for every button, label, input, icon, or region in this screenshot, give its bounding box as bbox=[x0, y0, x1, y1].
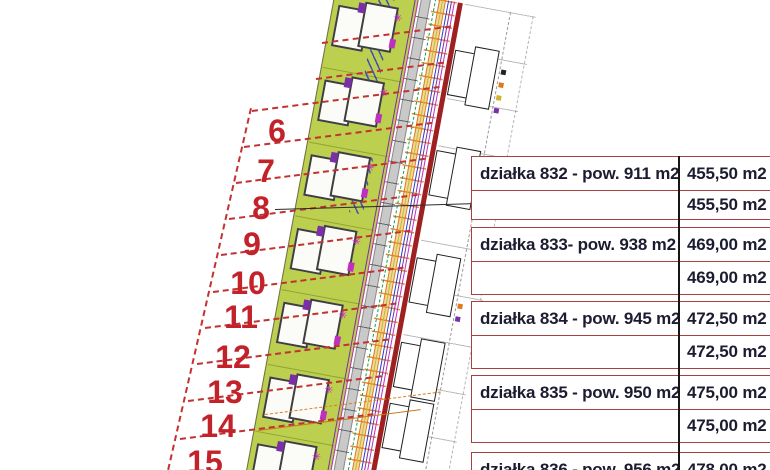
utility-connection-mark bbox=[493, 108, 499, 114]
utility-connection-mark bbox=[496, 95, 502, 101]
utility-accent bbox=[361, 188, 369, 198]
utility-accent bbox=[347, 262, 355, 272]
table-cell-plot-label: działka 836 - pow. 956 m2 bbox=[472, 453, 677, 470]
plot-number-14: 14 bbox=[200, 410, 236, 442]
table-cell-plot-label: działka 833- pow. 938 m2 bbox=[472, 228, 677, 261]
table-cell-area-value: 469,00 m2 bbox=[677, 262, 770, 294]
table-group-835: działka 835 - pow. 950 m2 475,00 m2 475,… bbox=[471, 375, 770, 443]
utility-connection-mark bbox=[457, 303, 463, 309]
plot-number-9: 9 bbox=[243, 228, 261, 260]
table-group-833: działka 833- pow. 938 m2 469,00 m2 469,0… bbox=[471, 227, 770, 295]
plot-number-6: 6 bbox=[268, 115, 286, 147]
utility-mark-icon: ✳ bbox=[311, 451, 322, 463]
table-cell-area-value: 455,50 m2 bbox=[677, 157, 770, 190]
utility-connection-mark bbox=[455, 316, 461, 322]
table-row: 475,00 m2 bbox=[472, 410, 770, 442]
table-row: działka 835 - pow. 950 m2 475,00 m2 bbox=[472, 376, 770, 410]
plot-number-8: 8 bbox=[252, 192, 270, 224]
plot-number-15: 15 bbox=[187, 446, 223, 470]
table-cell-empty bbox=[472, 262, 677, 294]
table-cell-area-value: 472,50 m2 bbox=[677, 336, 770, 368]
plot-number-13: 13 bbox=[207, 376, 243, 408]
utility-connection-mark bbox=[498, 82, 504, 88]
plot-number-7: 7 bbox=[257, 155, 275, 187]
table-cell-empty bbox=[472, 336, 677, 368]
table-cell-empty bbox=[472, 410, 677, 442]
table-row: 469,00 m2 bbox=[472, 262, 770, 294]
table-cell-area-value: 472,50 m2 bbox=[677, 302, 770, 335]
table-group-834: działka 834 - pow. 945 m2 472,50 m2 472,… bbox=[471, 301, 770, 369]
table-cell-plot-label: działka 835 - pow. 950 m2 bbox=[472, 376, 677, 409]
utility-mark-icon: ✳ bbox=[392, 13, 403, 25]
utility-accent bbox=[389, 39, 397, 49]
plot-number-12: 12 bbox=[215, 341, 251, 373]
table-cell-area-value: 475,00 m2 bbox=[677, 410, 770, 442]
table-cell-area-value: 478,00 m2 bbox=[677, 453, 770, 470]
table-row: 472,50 m2 bbox=[472, 336, 770, 368]
plot-number-10: 10 bbox=[230, 267, 266, 299]
table-cell-plot-label: działka 832 - pow. 911 m2 bbox=[472, 157, 677, 190]
table-column-divider bbox=[678, 156, 680, 470]
table-group-836: działka 836 - pow. 956 m2 478,00 m2 bbox=[471, 452, 770, 470]
table-cell-area-value: 455,50 m2 bbox=[677, 191, 770, 219]
table-row: działka 832 - pow. 911 m2 455,50 m2 bbox=[472, 157, 770, 191]
utility-accent bbox=[375, 113, 383, 123]
semi-detached-house-pair: ✳ bbox=[288, 220, 363, 289]
table-cell-empty bbox=[472, 191, 677, 219]
table-row: 455,50 m2 bbox=[472, 191, 770, 219]
table-row: działka 834 - pow. 945 m2 472,50 m2 bbox=[472, 302, 770, 336]
utility-connection-mark bbox=[501, 69, 507, 75]
table-row: działka 833- pow. 938 m2 469,00 m2 bbox=[472, 228, 770, 262]
site-plan-page: ✳ ✳ ✳ ✳ ✳ bbox=[0, 0, 770, 470]
table-row: działka 836 - pow. 956 m2 478,00 m2 bbox=[472, 453, 770, 470]
table-cell-area-value: 469,00 m2 bbox=[677, 228, 770, 261]
table-cell-area-value: 475,00 m2 bbox=[677, 376, 770, 409]
plot-number-11: 11 bbox=[224, 301, 258, 333]
table-group-832: działka 832 - pow. 911 m2 455,50 m2 455,… bbox=[471, 156, 770, 220]
table-cell-plot-label: działka 834 - pow. 945 m2 bbox=[472, 302, 677, 335]
utility-mark-icon: ✳ bbox=[323, 385, 334, 397]
